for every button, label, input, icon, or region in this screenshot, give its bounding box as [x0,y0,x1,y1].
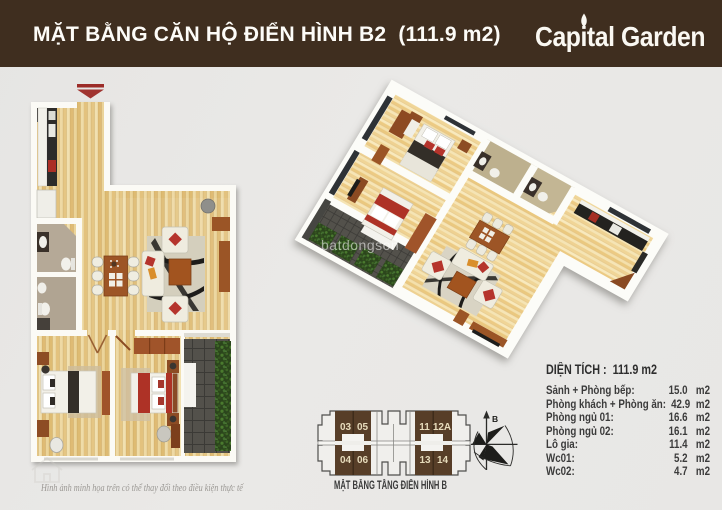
svg-text:14: 14 [437,455,449,466]
svg-text:12A: 12A [433,422,451,433]
svg-text:04: 04 [340,455,352,466]
svg-text:06: 06 [357,455,369,466]
svg-text:05: 05 [357,422,369,433]
svg-text:B: B [492,414,498,424]
svg-text:11: 11 [419,422,430,433]
svg-text:13: 13 [419,455,431,466]
svg-text:03: 03 [340,422,352,433]
